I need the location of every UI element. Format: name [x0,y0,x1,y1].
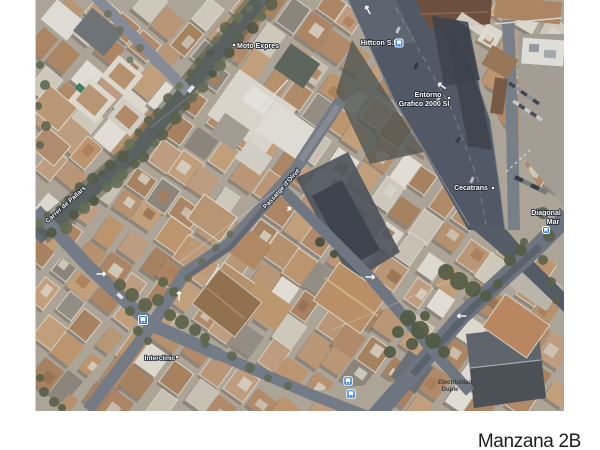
svg-text:Electricidad: Electricidad [438,380,472,386]
svg-text:Mar: Mar [547,219,560,226]
svg-text:Manzana 2B: Manzana 2B [478,431,581,450]
svg-text:Diagonal: Diagonal [531,210,561,217]
svg-text:Moto Expres: Moto Expres [237,43,279,50]
svg-text:Cecatrans: Cecatrans [454,185,488,192]
svg-text:Grafico 2000 Sl: Grafico 2000 Sl [399,101,450,108]
svg-text:Duple: Duple [442,387,459,393]
svg-text:Hittcon S.l: Hittcon S.l [361,40,396,47]
svg-text:Entorno: Entorno [415,92,442,99]
svg-text:Interclinic: Interclinic [145,355,176,362]
